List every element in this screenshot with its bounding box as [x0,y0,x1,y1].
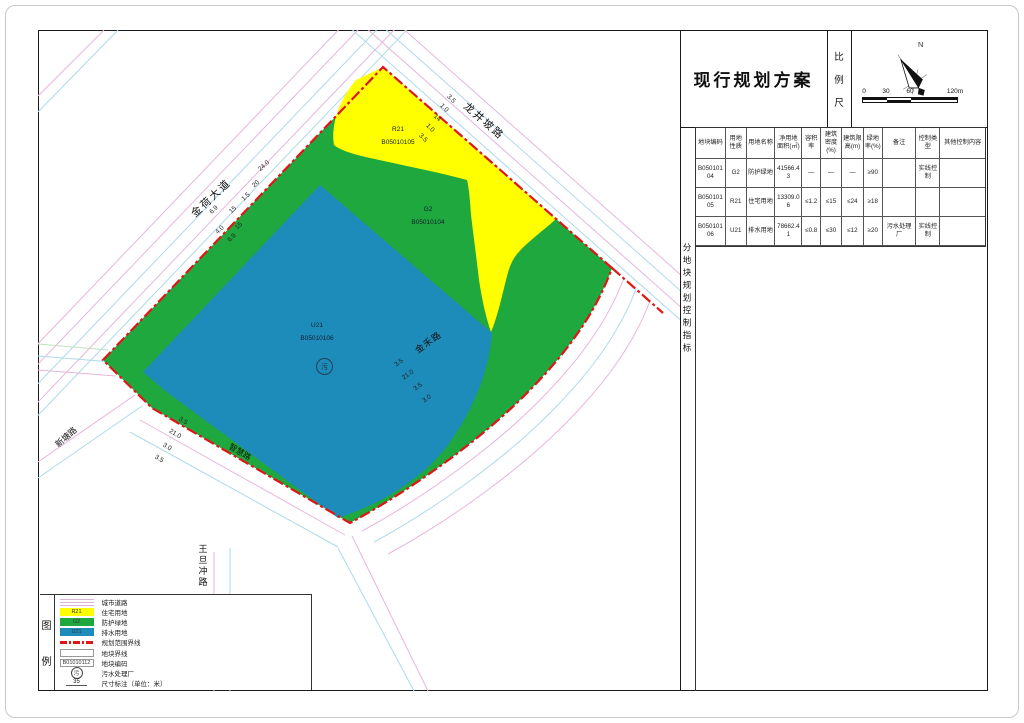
legend-item-sewage-plant: 污 污水处理厂 [57,668,311,678]
cell-other-control [940,217,985,246]
legend-item-label: 尺寸标注（单位：米） [102,678,167,688]
cell-green-rate: ≥20 [864,217,883,246]
zone-block-number: B05010105 [381,136,414,149]
cell-land-use-code: G2 [726,159,747,188]
scale-bar-band [862,97,958,103]
legend-item-green-space: G2 防护绿地 [57,617,311,627]
cell-land-use-name: 住宅用地 [747,188,776,217]
col-header: 用地名称 [747,128,776,159]
legend-item-label: 排水用地 [102,627,128,637]
cell-height-limit: ≤24 [842,188,864,217]
col-header: 备注 [883,128,917,159]
cell-control-type: 实线控制 [916,217,940,246]
drainage-swatch: U21 [60,628,94,636]
sewage-plant-symbol: 污 [316,358,333,375]
green-space-swatch: G2 [60,618,94,626]
legend-item-residential: R21 住宅用地 [57,607,311,617]
legend-item-boundary: 规划范围界线 [57,637,311,647]
legend-item-label: 地块界线 [102,648,128,658]
cell-remarks: 污水处理厂 [883,217,917,246]
cell-far: ≤1.2 [802,188,821,217]
legend-item-drainage: U21 排水用地 [57,627,311,637]
cell-land-use-name: 防护绿地 [747,159,776,188]
scale-char: 例 [834,72,844,86]
cell-net-area: 13309.06 [775,188,802,217]
cell-density: ≤30 [821,217,842,246]
legend-caption-char: 例 [42,653,52,668]
scale-tick: 0 [862,88,866,95]
cell-far: ≤0.8 [802,217,821,246]
zone-block-number: B05010104 [411,216,444,229]
legend-item-label: 规划范围界线 [102,637,141,647]
cell-remarks [883,188,917,217]
cell-height-limit: — [842,159,864,188]
scale-char: 尺 [834,95,844,109]
legend-item-parcel-line: 地块界线 [57,648,311,658]
zone-label-G2: G2 B05010104 [411,203,444,229]
cell-height-limit: ≤12 [842,217,864,246]
legend-item-label: 城市道路 [102,597,128,607]
cell-other-control [940,188,985,217]
cell-block-code: B05010104 [696,159,726,188]
block-code-swatch: B01010112 [60,659,94,667]
panel-divider [680,30,681,691]
legend-item-label: 地块编码 [102,658,128,668]
legend-caption-char: 图 [42,617,52,632]
col-header: 建筑密度(%) [821,128,842,159]
panel-side-caption: 分地块规划控制指标 [681,243,693,356]
parcel-line-swatch [60,649,94,657]
zone-code: U21 [300,319,333,332]
zone-label-R21: R21 B05010105 [381,123,414,149]
zone-code: G2 [411,203,444,216]
scale-tick: 120m [947,88,963,95]
scale-label: 比 例 尺 [827,30,851,127]
cell-block-code: B05010105 [696,188,726,217]
boundary-line-swatch [60,641,94,644]
col-header: 建筑限高(m) [842,128,864,159]
scale-bar: 0 30 60 120m [862,88,962,108]
plan-sheet: 金荷大道 龙井坡路 金禾路 智慧路 新塘路 王旦冲路 R21 B05010105… [0,0,1024,723]
sheet-title: 现行规划方案 [680,30,827,127]
cell-density: ≤15 [821,188,842,217]
scale-tick: 60 [906,88,913,95]
control-indicators-table: 地块编码 用地性质 用地名称 净用地面积(㎡) 容积率 建筑密度(%) 建筑限高… [695,127,986,247]
scale-char: 比 [834,49,844,63]
zone-block-number: B05010106 [300,332,333,345]
cell-control-type [916,188,940,217]
legend-caption: 图 例 [40,595,55,690]
col-header: 用地性质 [726,128,747,159]
dimension-swatch: 35 [66,679,87,686]
cell-block-code: B05010106 [696,217,726,246]
cell-land-use-code: R21 [726,188,747,217]
legend-items: 城市道路 R21 住宅用地 G2 防护绿地 U21 排水用地 规划范围界线 地块… [55,595,311,690]
cell-density: — [821,159,842,188]
cell-green-rate: ≥18 [864,188,883,217]
col-header: 地块编码 [696,128,726,159]
col-header: 净用地面积(㎡) [775,128,802,159]
cell-remarks [883,159,917,188]
legend-box: 图 例 城市道路 R21 住宅用地 G2 防护绿地 U21 排水用地 规划范围 [40,594,312,690]
cell-net-area: 41566.43 [775,159,802,188]
north-label: N [918,40,923,49]
cell-green-rate: ≥90 [864,159,883,188]
cell-land-use-code: U21 [726,217,747,246]
residential-swatch: R21 [60,608,94,616]
legend-item-label: 污水处理厂 [102,668,135,678]
cell-other-control [940,159,985,188]
road-label-wangdanchong-road: 王旦冲路 [197,544,210,588]
legend-item-dimension: 35 尺寸标注（单位：米） [57,678,311,688]
legend-item-label: 住宅用地 [102,607,128,617]
city-road-swatch [60,599,94,606]
cell-net-area: 78662.41 [775,217,802,246]
col-header: 其他控制内容 [940,128,985,159]
col-header: 控制类型 [916,128,940,159]
scale-tick: 30 [882,88,889,95]
legend-item-label: 防护绿地 [102,617,128,627]
planning-map [38,30,680,691]
cell-control-type: 实线控制 [916,159,940,188]
zone-label-U21: U21 B05010106 [300,319,333,345]
col-header: 容积率 [802,128,821,159]
cell-far: — [802,159,821,188]
zone-code: R21 [381,123,414,136]
legend-item-city-road: 城市道路 [57,597,311,607]
cell-land-use-name: 排水用地 [747,217,776,246]
col-header: 绿地率(%) [864,128,883,159]
